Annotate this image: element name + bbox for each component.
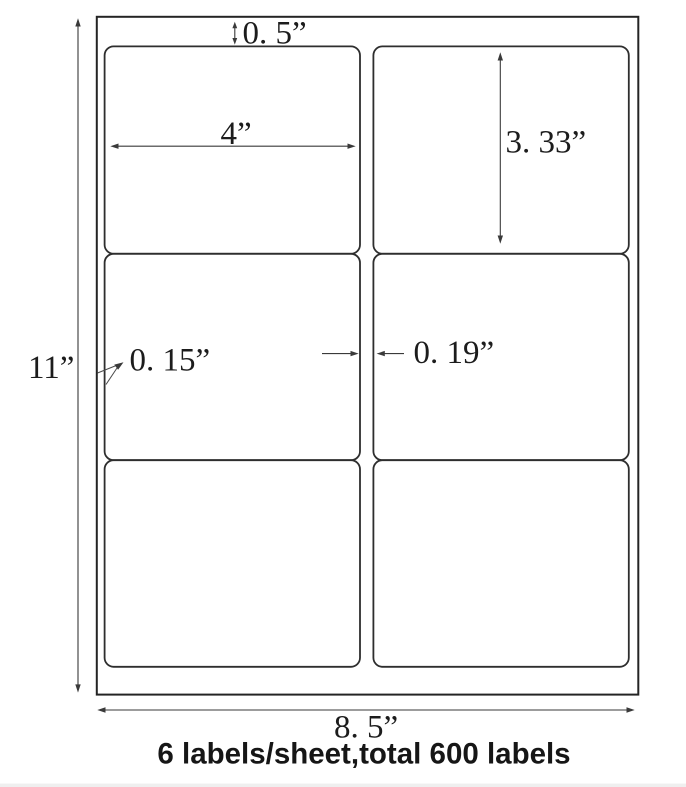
svg-text:3. 33”: 3. 33”	[506, 125, 587, 161]
svg-text:0. 19”: 0. 19”	[414, 335, 495, 371]
svg-text:0. 5”: 0. 5”	[243, 16, 307, 52]
svg-text:4”: 4”	[221, 116, 252, 152]
svg-text:11”: 11”	[28, 350, 74, 386]
svg-text:0. 15”: 0. 15”	[130, 343, 211, 379]
svg-text:6 labels/sheet,total 600 label: 6 labels/sheet,total 600 labels	[157, 738, 570, 771]
